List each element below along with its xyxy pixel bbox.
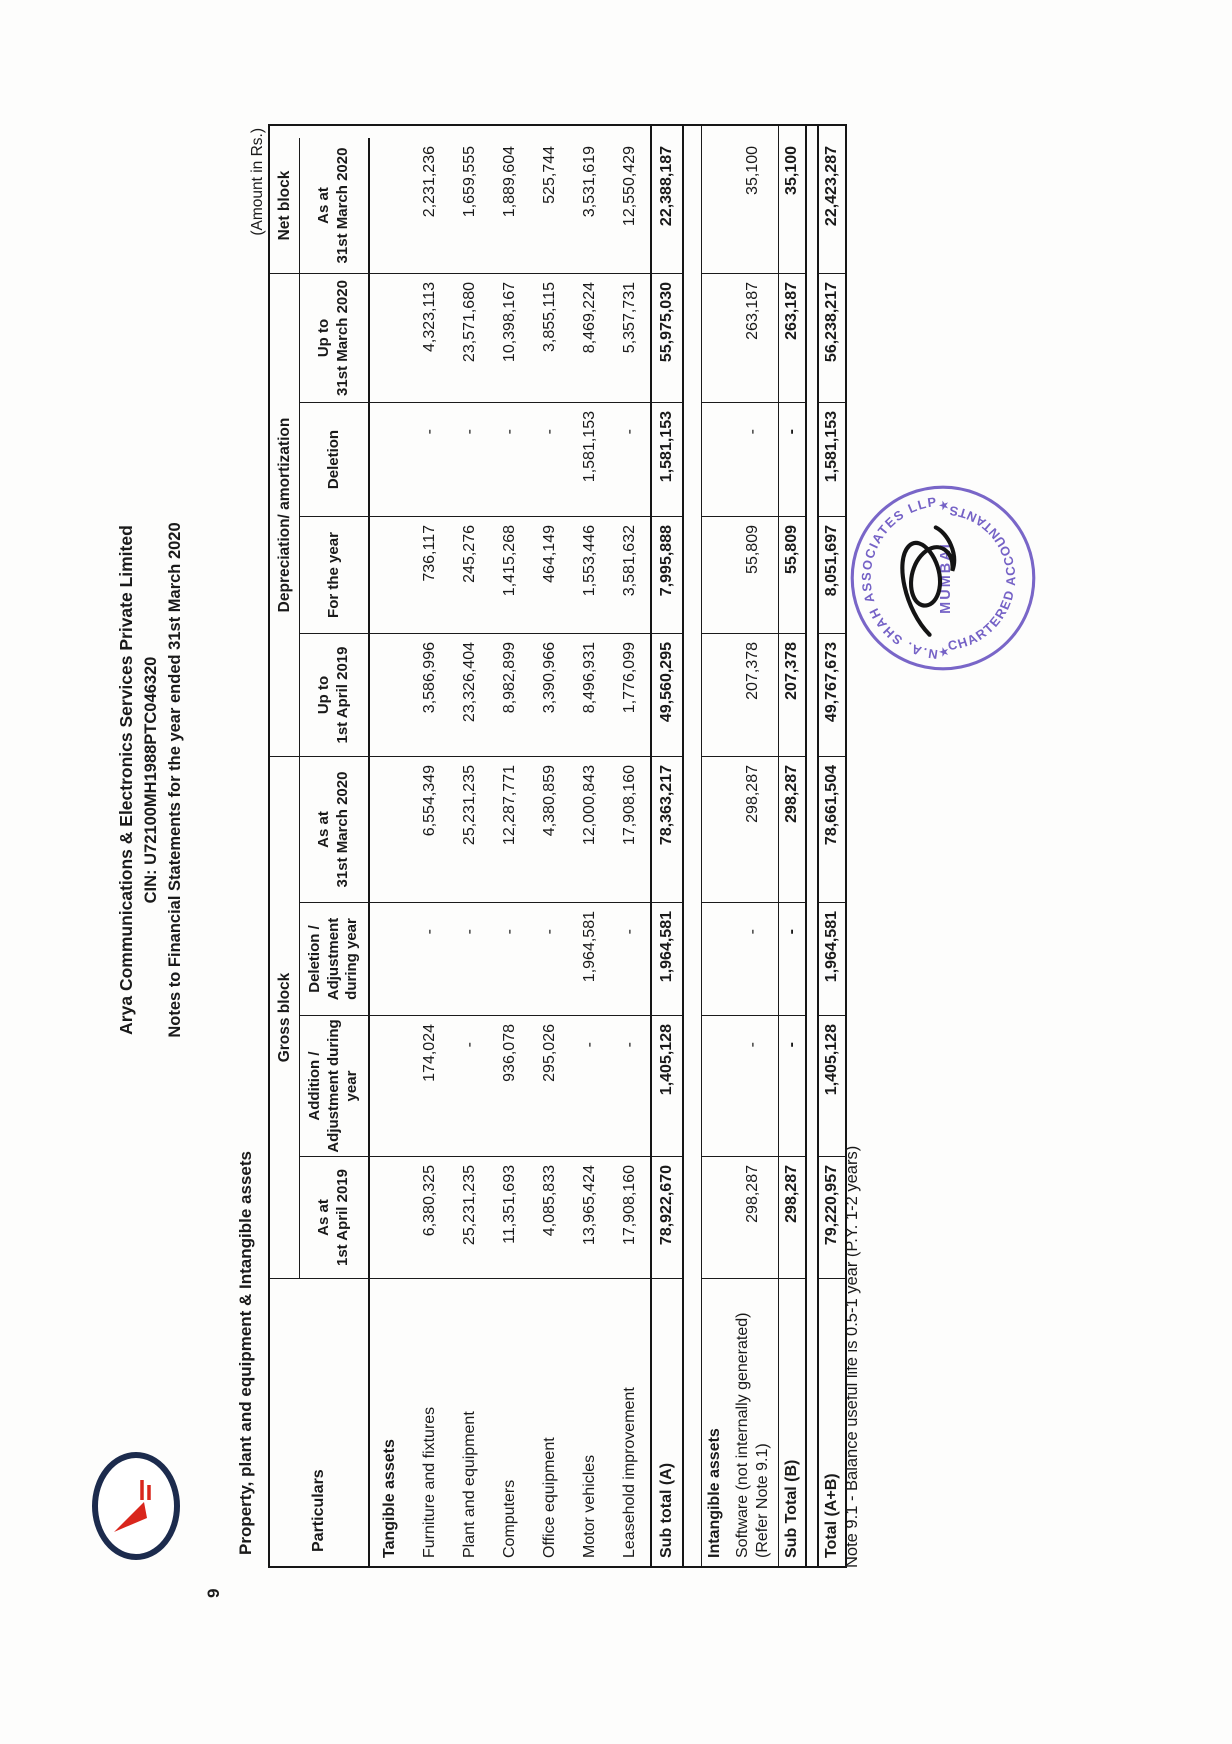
row-value: - — [410, 402, 450, 516]
note-number: 9 — [204, 1589, 224, 1598]
row-value — [702, 138, 727, 273]
row-value: - — [610, 402, 650, 516]
table-row: Furniture and fixtures6,380,325174,024-6… — [410, 126, 450, 1566]
row-label: Motor vehicles — [570, 1278, 610, 1566]
header-particulars: Particulars — [270, 1278, 370, 1566]
row-value: - — [450, 902, 490, 1015]
row-value: 1,581,153 — [570, 402, 610, 516]
row-value: 3,855,115 — [530, 273, 570, 402]
row-value: 25,231,235 — [450, 756, 490, 902]
row-value — [370, 902, 410, 1015]
table-row — [807, 126, 817, 1566]
row-value: 245,276 — [450, 516, 490, 633]
letterhead: Arya Communications & Electronics Servic… — [116, 172, 185, 1388]
document-sheet: Arya Communications & Electronics Servic… — [0, 0, 1232, 1744]
row-value: 79,220,957 — [819, 1156, 845, 1278]
row-value — [702, 756, 727, 902]
table-row: Total (A+B)79,220,9571,405,1281,964,5817… — [817, 126, 845, 1566]
row-value: 2,231,236 — [410, 138, 450, 273]
row-value: 78,922,670 — [652, 1156, 682, 1278]
row-value: 35,100 — [779, 138, 805, 273]
table-row: Sub Total (B)298,287--298,287207,37855,8… — [778, 126, 807, 1566]
row-value: - — [450, 402, 490, 516]
row-value: 49,560,295 — [652, 633, 682, 756]
row-value: 1,415,268 — [490, 516, 530, 633]
logo-ring-icon — [95, 1455, 177, 1557]
header-col-additions: Addition / Adjustment during year — [300, 1015, 370, 1156]
row-value: 295,026 — [530, 1015, 570, 1156]
svg-text:CHARTERED ACCOUNTANTS: CHARTERED ACCOUNTANTS — [947, 503, 1019, 653]
row-value: 22,388,187 — [652, 138, 682, 273]
row-value: 6,554,349 — [410, 756, 450, 902]
row-label: Sub Total (B) — [779, 1278, 805, 1566]
row-value: - — [727, 402, 778, 516]
row-value — [370, 138, 410, 273]
table-row: Leasehold improvement17,908,160--17,908,… — [610, 126, 650, 1566]
row-value: 17,908,160 — [610, 1156, 650, 1278]
row-value: - — [610, 902, 650, 1015]
row-value: 5,357,731 — [610, 273, 650, 402]
row-value — [370, 516, 410, 633]
row-label: Leasehold improvement — [610, 1278, 650, 1566]
row-value: 7,995,888 — [652, 516, 682, 633]
row-value: 49,767,673 — [819, 633, 845, 756]
row-value: 3,531,619 — [570, 138, 610, 273]
row-value: - — [490, 902, 530, 1015]
row-value: 8,496,931 — [570, 633, 610, 756]
row-value — [370, 1015, 410, 1156]
row-label: Total (A+B) — [819, 1278, 845, 1566]
stamp-star-left-icon: ★ — [937, 646, 951, 657]
amount-unit-note: (Amount in Rs.) — [249, 128, 267, 378]
row-value: 1,964,581 — [819, 902, 845, 1015]
row-value: 8,469,224 — [570, 273, 610, 402]
row-value — [702, 633, 727, 756]
row-value: 1,405,128 — [652, 1015, 682, 1156]
row-label: Computers — [490, 1278, 530, 1566]
row-value: 13,965,424 — [570, 1156, 610, 1278]
stamp-firm-name: N.A. SHAH ASSOCIATES LLP — [859, 494, 939, 662]
row-value: 174,024 — [410, 1015, 450, 1156]
row-value: 12,550,429 — [610, 138, 650, 273]
row-label: Sub total (A) — [652, 1278, 682, 1566]
row-value — [370, 633, 410, 756]
stamp-star-right-icon: ★ — [937, 500, 951, 511]
row-value: 78,363,217 — [652, 756, 682, 902]
row-value: 22,423,287 — [819, 138, 845, 273]
row-value: - — [570, 1015, 610, 1156]
header-col-depr-for-year: For the year — [300, 516, 370, 633]
header-col-deletions-gross: Deletion / Adjustment during year — [300, 902, 370, 1015]
table-row: Sub total (A)78,922,6701,405,1281,964,58… — [650, 126, 684, 1566]
statement-title: Notes to Financial Statements for the ye… — [166, 172, 185, 1388]
row-value — [370, 1156, 410, 1278]
row-value: 1,581,153 — [819, 402, 845, 516]
row-value: 12,000,843 — [570, 756, 610, 902]
row-label: Software (not internally generated) (Ref… — [727, 1278, 778, 1566]
row-value — [702, 273, 727, 402]
row-value: 1,553,446 — [570, 516, 610, 633]
row-value: 56,238,217 — [819, 273, 845, 402]
header-col-opening-depr: Up to 1st April 2019 — [300, 633, 370, 756]
row-value: 6,380,325 — [410, 1156, 450, 1278]
row-value: - — [410, 902, 450, 1015]
ca-firm-stamp: N.A. SHAH ASSOCIATES LLP CHARTERED ACCOU… — [845, 480, 1041, 676]
row-value: 11,351,693 — [490, 1156, 530, 1278]
row-value: 17,908,160 — [610, 756, 650, 902]
company-name: Arya Communications & Electronics Servic… — [116, 172, 137, 1388]
row-label: Tangible assets — [370, 1278, 410, 1566]
row-label: Plant and equipment — [450, 1278, 490, 1566]
row-value: 8,051,697 — [819, 516, 845, 633]
row-value: 10,398,167 — [490, 273, 530, 402]
row-value: 936,078 — [490, 1015, 530, 1156]
row-value: - — [779, 902, 805, 1015]
header-col-net-block: As at 31st March 2020 — [300, 138, 370, 273]
row-value: 4,085,833 — [530, 1156, 570, 1278]
row-value — [370, 402, 410, 516]
row-value: 1,964,581 — [652, 902, 682, 1015]
company-logo — [90, 1450, 182, 1562]
row-value: - — [530, 402, 570, 516]
table-row: Computers11,351,693936,078-12,287,7718,9… — [490, 126, 530, 1566]
header-col-closing-gross: As at 31st March 2020 — [300, 756, 370, 902]
row-value: - — [610, 1015, 650, 1156]
header-col-deletion-depr: Deletion — [300, 402, 370, 516]
row-value: - — [727, 902, 778, 1015]
row-value: 55,975,030 — [652, 273, 682, 402]
header-col-opening-gross: As at 1st April 2019 — [300, 1156, 370, 1278]
row-value: 298,287 — [727, 756, 778, 902]
header-group-net-block: Net block — [270, 138, 300, 273]
table-header: Particulars Gross block Depreciation/ am… — [270, 126, 370, 1566]
row-value: 8,982,899 — [490, 633, 530, 756]
row-value: 55,809 — [727, 516, 778, 633]
table-row: Tangible assets — [370, 126, 410, 1566]
row-value: 55,809 — [779, 516, 805, 633]
row-label: Office equipment — [530, 1278, 570, 1566]
row-value: 12,287,771 — [490, 756, 530, 902]
row-value: 464,149 — [530, 516, 570, 633]
row-value — [702, 1156, 727, 1278]
row-value — [370, 756, 410, 902]
table-row: Plant and equipment25,231,235--25,231,23… — [450, 126, 490, 1566]
row-value: 23,571,680 — [450, 273, 490, 402]
svg-text:N.A. SHAH ASSOCIATES LLP: N.A. SHAH ASSOCIATES LLP — [859, 494, 939, 662]
row-value: 207,378 — [779, 633, 805, 756]
row-value: 3,586,996 — [410, 633, 450, 756]
section-title: Property, plant and equipment & Intangib… — [236, 1151, 256, 1555]
row-value: 3,581,632 — [610, 516, 650, 633]
table-row — [684, 126, 701, 1566]
table-row: Office equipment4,085,833295,026-4,380,8… — [530, 126, 570, 1566]
company-cin: CIN: U72100MH1988PTC046320 — [142, 172, 161, 1388]
row-value: 78,661,504 — [819, 756, 845, 902]
header-group-depreciation: Depreciation/ amortization — [270, 273, 300, 756]
row-value — [702, 402, 727, 516]
footnote: Note 9.1 - Balance useful life is 0.5-1 … — [843, 1146, 862, 1568]
row-value: 736,117 — [410, 516, 450, 633]
row-value — [702, 1015, 727, 1156]
fixed-assets-table: Particulars Gross block Depreciation/ am… — [268, 124, 847, 1568]
row-value: 1,889,604 — [490, 138, 530, 273]
stamp-firm-type: CHARTERED ACCOUNTANTS — [947, 503, 1019, 653]
table-row: Intangible assets — [701, 126, 727, 1566]
row-value: 1,405,128 — [819, 1015, 845, 1156]
row-value: 525,744 — [530, 138, 570, 273]
row-value: - — [779, 1015, 805, 1156]
row-label: Furniture and fixtures — [410, 1278, 450, 1566]
table-row: Motor vehicles13,965,424-1,964,58112,000… — [570, 126, 610, 1566]
row-label: Intangible assets — [702, 1278, 727, 1566]
row-value: 4,380,859 — [530, 756, 570, 902]
row-value: 263,187 — [779, 273, 805, 402]
row-value: 207,378 — [727, 633, 778, 756]
table-rows: Tangible assetsFurniture and fixtures6,3… — [370, 126, 845, 1566]
header-group-gross-block: Gross block — [270, 756, 300, 1278]
row-value: 298,287 — [727, 1156, 778, 1278]
header-col-closing-depr: Up to 31st March 2020 — [300, 273, 370, 402]
row-value: - — [779, 402, 805, 516]
row-value: 35,100 — [727, 138, 778, 273]
row-value: 1,581,153 — [652, 402, 682, 516]
row-value — [702, 902, 727, 1015]
row-value: 298,287 — [779, 1156, 805, 1278]
table-row: Software (not internally generated) (Ref… — [727, 126, 778, 1566]
row-value: 298,287 — [779, 756, 805, 902]
row-value: 263,187 — [727, 273, 778, 402]
row-value — [370, 273, 410, 402]
row-value: - — [530, 902, 570, 1015]
row-value: 1,776,099 — [610, 633, 650, 756]
row-value: 25,231,235 — [450, 1156, 490, 1278]
row-value — [702, 516, 727, 633]
row-value: 3,390,966 — [530, 633, 570, 756]
row-value: - — [450, 1015, 490, 1156]
row-value: 4,323,113 — [410, 273, 450, 402]
row-value: - — [727, 1015, 778, 1156]
row-value: 23,326,404 — [450, 633, 490, 756]
row-value: - — [490, 402, 530, 516]
row-value: 1,659,555 — [450, 138, 490, 273]
row-value: 1,964,581 — [570, 902, 610, 1015]
